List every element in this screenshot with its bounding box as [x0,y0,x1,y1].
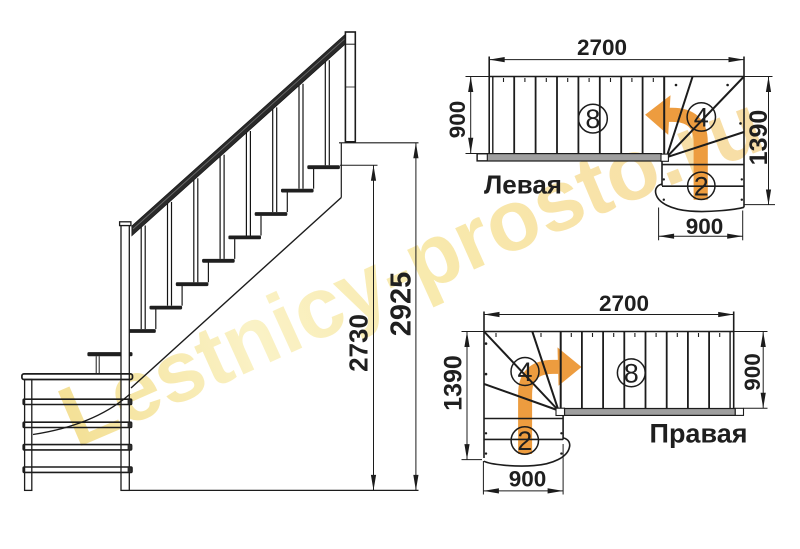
svg-text:1390: 1390 [440,355,468,411]
svg-text:900: 900 [509,467,547,492]
svg-text:900: 900 [445,101,470,139]
svg-text:2730: 2730 [344,314,374,372]
svg-text:2700: 2700 [577,35,627,60]
svg-text:8: 8 [624,358,639,388]
svg-text:2925: 2925 [386,272,418,337]
svg-text:8: 8 [585,104,600,134]
svg-text:2: 2 [517,426,532,456]
svg-text:2: 2 [694,171,709,201]
svg-text:4: 4 [517,357,532,387]
svg-text:Правая: Правая [650,419,748,449]
svg-text:2700: 2700 [599,291,649,316]
svg-text:900: 900 [740,353,765,391]
svg-text:4: 4 [694,103,709,133]
svg-text:1390: 1390 [745,110,773,166]
svg-text:900: 900 [686,214,724,239]
svg-text:Левая: Левая [484,170,562,200]
